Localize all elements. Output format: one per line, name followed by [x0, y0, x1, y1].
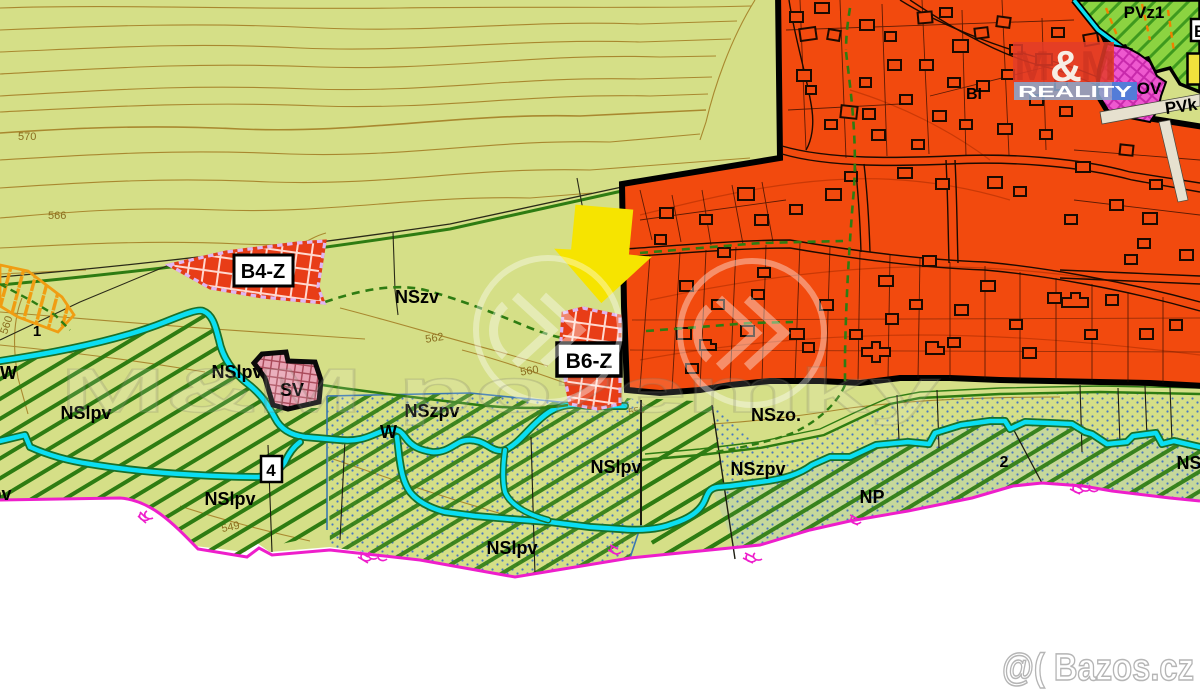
svg-text:@( Bazos.cz: @( Bazos.cz	[1002, 647, 1194, 689]
svg-text:NP: NP	[859, 487, 884, 507]
svg-text:REALITY: REALITY	[1018, 84, 1133, 101]
svg-text:NSlpv: NSlpv	[204, 489, 255, 509]
svg-text:B: B	[1194, 22, 1200, 41]
svg-text:NSlpv: NSlpv	[590, 457, 641, 477]
svg-text:NSlpv: NSlpv	[0, 484, 12, 504]
svg-text:570: 570	[18, 131, 36, 143]
svg-text:NSlpv: NSlpv	[1176, 453, 1200, 473]
svg-text:4: 4	[266, 461, 276, 480]
svg-text:M: M	[1081, 42, 1116, 89]
svg-text:OV: OV	[1137, 79, 1162, 98]
svg-text:NSzv: NSzv	[395, 287, 439, 307]
svg-text:NSlpv: NSlpv	[486, 538, 537, 558]
svg-text:566: 566	[48, 210, 66, 222]
svg-text:M: M	[1015, 42, 1050, 89]
svg-text:2: 2	[1000, 454, 1009, 471]
svg-text:M&M pozemky: M&M pozemky	[60, 357, 941, 426]
svg-text:PVz1: PVz1	[1124, 3, 1165, 22]
svg-text:W: W	[0, 363, 17, 383]
svg-text:NSzpv: NSzpv	[730, 459, 785, 479]
svg-text:BI: BI	[966, 86, 982, 103]
svg-text:B4-Z: B4-Z	[241, 261, 285, 283]
svg-text:1: 1	[33, 323, 41, 340]
